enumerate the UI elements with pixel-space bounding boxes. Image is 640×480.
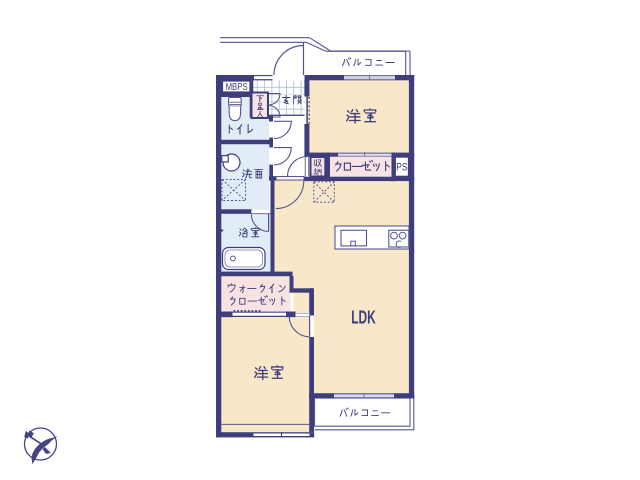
svg-text:MBPS: MBPS: [226, 82, 248, 93]
svg-text:LDK: LDK: [351, 307, 376, 328]
svg-text:PS: PS: [396, 162, 408, 174]
